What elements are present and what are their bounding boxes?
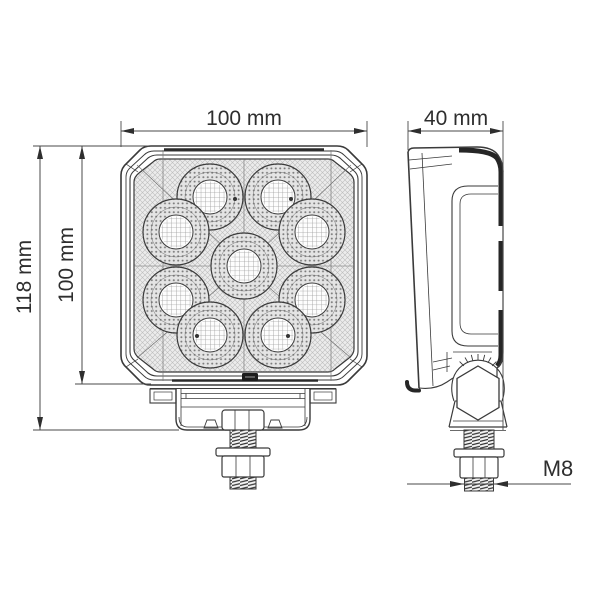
dim-total-height-label: 118 mm (13, 240, 36, 314)
hex-nut (460, 457, 498, 478)
dim-body-height: 100 mm (55, 146, 85, 384)
dim-front-width: 100 mm (121, 107, 367, 134)
washer (216, 448, 270, 456)
technical-drawing: 100 mm 118 mm 100 mm 40 mm M (0, 0, 600, 600)
washer (454, 449, 504, 457)
bracket-bolt-head (222, 410, 264, 430)
led-right-upper (279, 199, 345, 265)
front-mounting-bracket (150, 389, 336, 431)
led-bottom-left (177, 302, 243, 368)
clamp-hex-bolt (457, 366, 499, 420)
lamp-side-profile-view (407, 147, 507, 491)
led-bottom-right (245, 302, 311, 368)
dim-depth: 40 mm (408, 107, 503, 134)
dim-body-height-label: 100 mm (55, 227, 78, 303)
dim-depth-label: 40 mm (424, 107, 488, 130)
drawing-canvas: 100 mm 118 mm 100 mm 40 mm M (0, 0, 600, 600)
led-left-upper (143, 199, 209, 265)
front-mounting-stud (216, 430, 270, 489)
rear-channel (447, 186, 498, 372)
dim-thread-label: M8 (543, 456, 574, 481)
lens-contour-lines (409, 153, 452, 386)
dim-total-height: 118 mm (13, 146, 43, 430)
hex-nut (222, 456, 264, 477)
lamp-front-view (121, 146, 367, 489)
led-center (211, 233, 277, 299)
side-mounting-stud (454, 430, 504, 491)
dim-front-width-label: 100 mm (206, 107, 282, 130)
lens-bottom-curl (407, 382, 419, 391)
